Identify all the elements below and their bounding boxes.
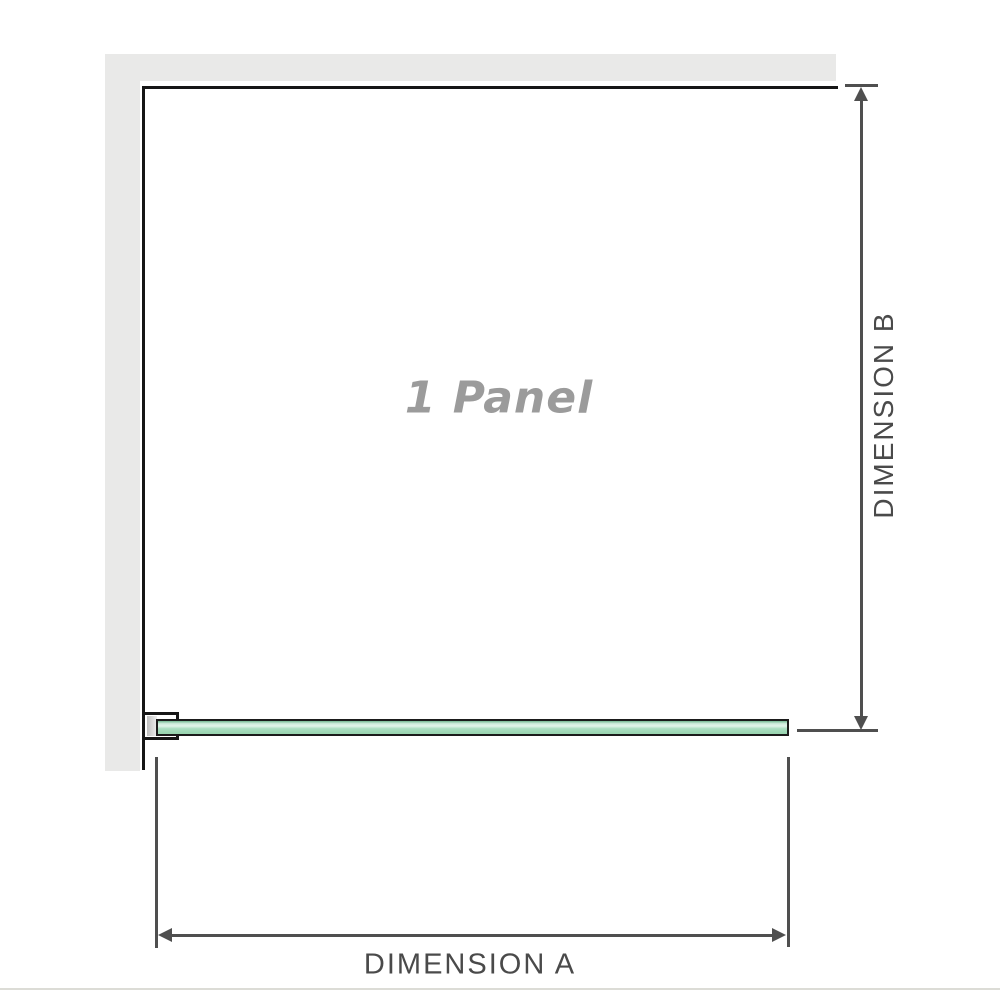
footer-divider-line bbox=[0, 988, 1000, 990]
arrow-left-icon bbox=[158, 928, 172, 942]
wall-top-band bbox=[105, 54, 836, 81]
dimension-a-right-extension-line bbox=[787, 757, 790, 947]
glass-panel bbox=[156, 719, 789, 736]
dimension-b-bottom-tick bbox=[797, 729, 878, 732]
dimension-a-line bbox=[171, 934, 773, 937]
dimension-a-label: DIMENSION A bbox=[364, 949, 576, 982]
panel-outline-left bbox=[142, 86, 145, 770]
wall-left-band bbox=[105, 54, 140, 771]
shower-panel-diagram: 1 Panel DIMENSION B DIMENSION A bbox=[0, 0, 1000, 1000]
panel-count-label: 1 Panel bbox=[405, 373, 593, 424]
dimension-a-left-extension-line bbox=[155, 757, 158, 948]
panel-outline-top bbox=[142, 86, 838, 89]
dimension-b-line bbox=[860, 99, 863, 718]
dimension-b-label: DIMENSION B bbox=[868, 311, 900, 518]
arrow-down-icon bbox=[854, 716, 868, 730]
arrow-right-icon bbox=[772, 928, 786, 942]
